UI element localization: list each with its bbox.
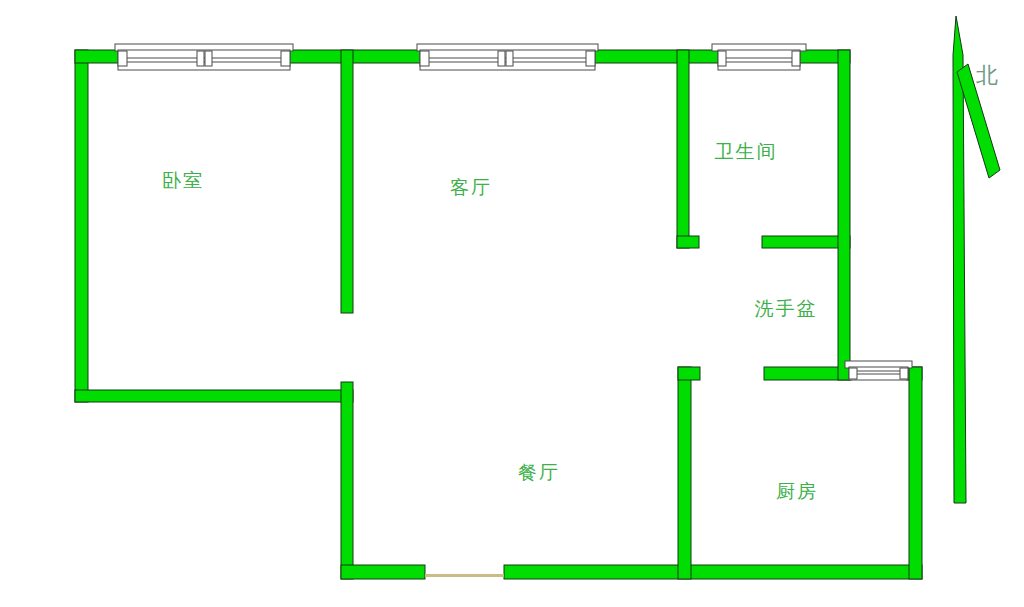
- wall-kitchen-left: [678, 367, 691, 579]
- wall-top-segment-1: [75, 50, 119, 63]
- room-label-living-room: 客厅: [450, 175, 492, 201]
- kitchen-window: [845, 361, 912, 380]
- wall-bedroom-living-divider: [341, 50, 353, 313]
- room-label-kitchen: 厨房: [776, 479, 818, 505]
- bedroom-window: [115, 44, 293, 70]
- wall-bathroom-bottom: [762, 236, 850, 248]
- wall-left-exterior: [75, 50, 88, 402]
- bathroom-window: [712, 44, 806, 70]
- wall-top-segment-2: [289, 50, 421, 63]
- floor-plan-drawing: [0, 0, 1024, 607]
- wall-living-bathroom-divider: [677, 50, 689, 248]
- room-label-bedroom: 卧室: [162, 168, 204, 194]
- living-room-window: [417, 44, 598, 70]
- wall-top-segment-3: [594, 50, 719, 63]
- wall-bathroom-door-foot: [677, 236, 699, 248]
- room-label-wash-basin: 洗手盆: [755, 296, 818, 322]
- wall-bottom-segment-1: [341, 565, 425, 579]
- room-label-dining-room: 餐厅: [518, 460, 560, 486]
- wall-kitchen-left-foot: [678, 367, 700, 380]
- wall-dining-left: [341, 382, 353, 579]
- room-label-bathroom: 卫生间: [715, 139, 778, 165]
- wall-bottom-segment-2: [504, 565, 922, 579]
- dining-entry-threshold: [425, 574, 504, 577]
- compass-north-label: 北: [976, 61, 998, 91]
- wall-washbasin-right: [838, 50, 850, 380]
- floor-plan: 卧室 客厅 卫生间 洗手盆 餐厅 厨房 北: [0, 0, 1024, 607]
- wall-bedroom-bottom: [75, 390, 353, 402]
- wall-kitchen-right: [909, 367, 922, 579]
